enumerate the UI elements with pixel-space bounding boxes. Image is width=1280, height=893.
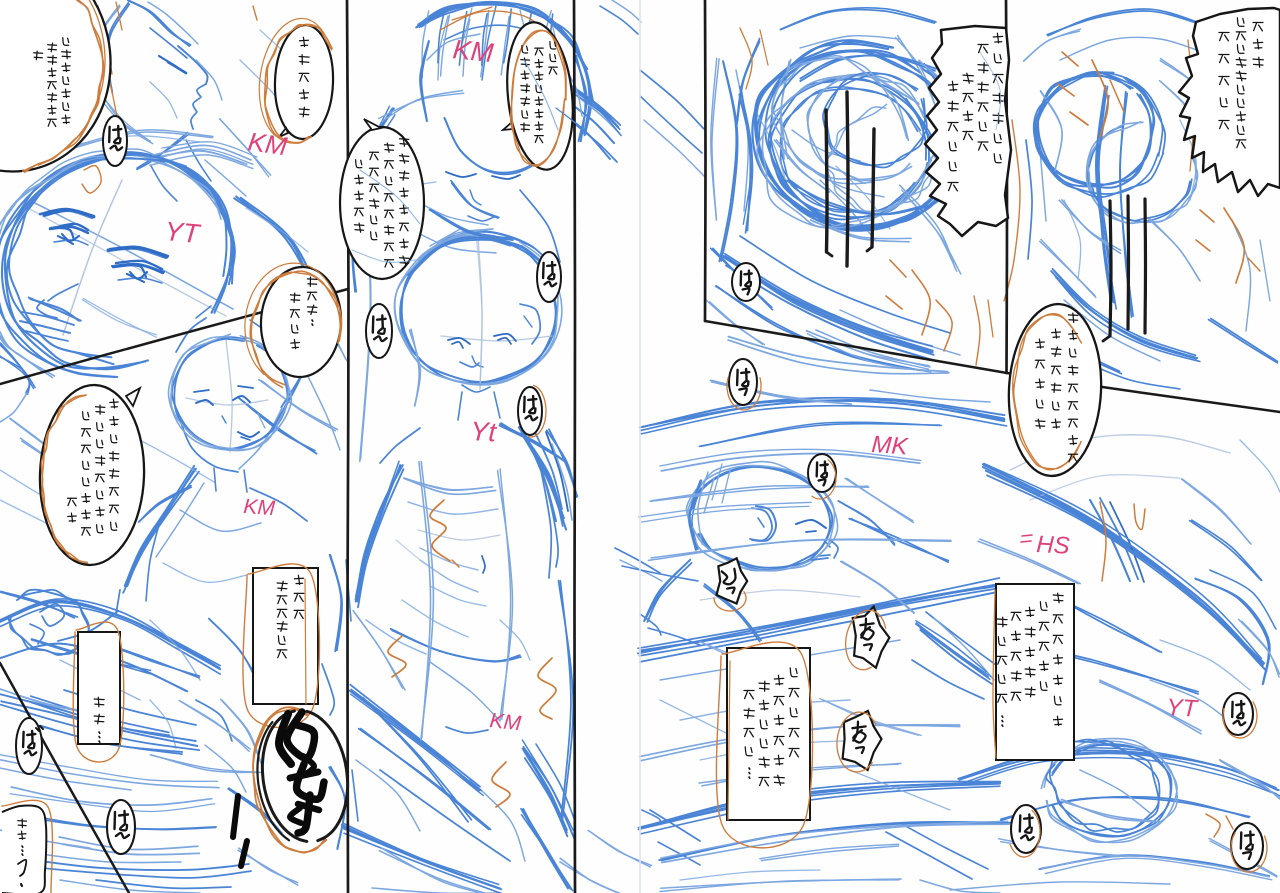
- svg-text:MK: MK: [871, 431, 910, 461]
- svg-text:HS: HS: [1036, 531, 1071, 560]
- svg-text:KM: KM: [243, 495, 277, 520]
- svg-text:YT: YT: [1166, 694, 1200, 723]
- svg-text:KM: KM: [246, 126, 289, 161]
- svg-text:YT: YT: [163, 216, 202, 249]
- svg-text:KM: KM: [488, 709, 522, 735]
- svg-text:Yt: Yt: [470, 416, 499, 447]
- svg-text:KM: KM: [451, 34, 495, 68]
